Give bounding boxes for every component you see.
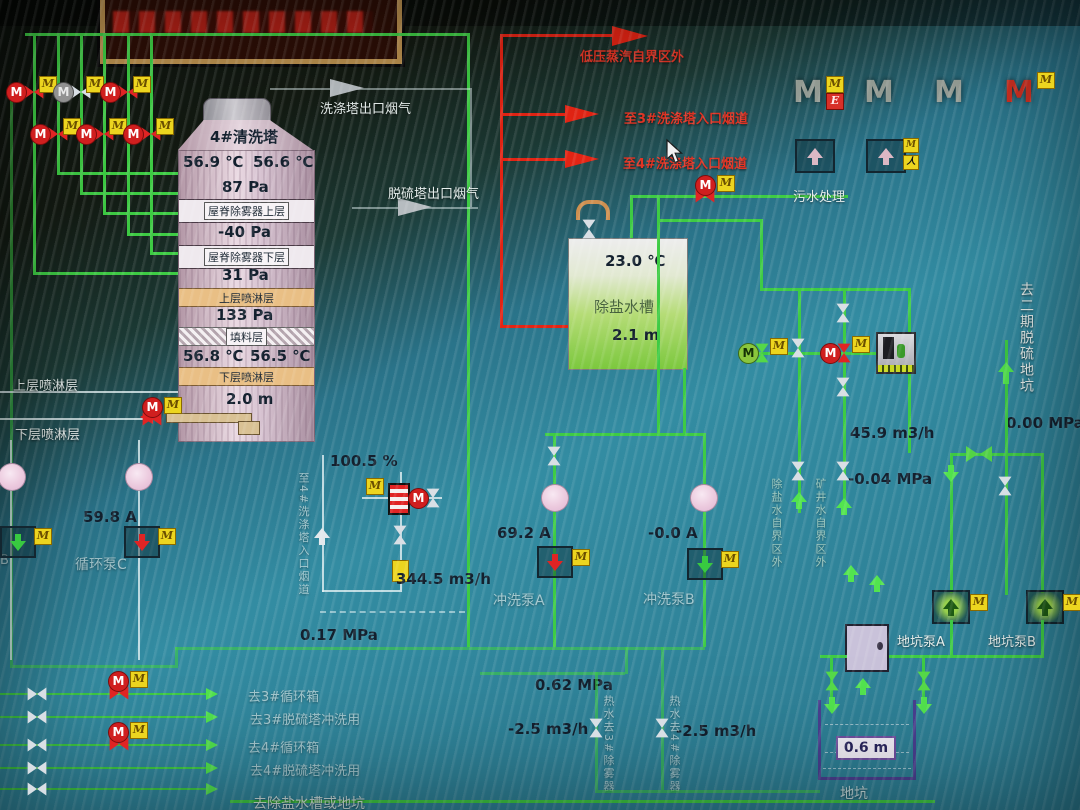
valve-icon[interactable] <box>837 462 850 481</box>
circ-c-current: 59.8 A <box>83 508 137 526</box>
bottom-flow-left: -2.5 m3/h <box>508 720 588 738</box>
m-tag: M <box>130 671 148 688</box>
pipe <box>760 219 763 288</box>
m-tag: M <box>130 722 148 739</box>
pipe <box>703 433 706 647</box>
m-tag: M <box>1063 594 1080 611</box>
motor-indicator[interactable]: M <box>108 722 129 743</box>
tower-level: 2.0 m <box>226 390 273 408</box>
m-tag: M <box>164 397 182 414</box>
demin-src-label: 除盐水自界区外 <box>768 478 784 598</box>
water-line <box>823 768 911 769</box>
pit-level-box: 0.6 m <box>836 736 896 760</box>
right-flow: 45.9 m3/h <box>850 424 934 442</box>
m-tag: M <box>133 76 151 93</box>
valve-icon[interactable] <box>548 447 561 466</box>
steam-label-3: 至4#洗涤塔入口烟道 <box>623 153 747 172</box>
m-tag: M <box>1037 72 1055 89</box>
valve-icon[interactable] <box>28 783 47 796</box>
pump-impeller[interactable] <box>541 484 569 512</box>
pipe <box>80 192 178 195</box>
tower-name: 4#清洗塔 <box>210 126 278 147</box>
pipe <box>657 219 760 222</box>
pipe <box>0 418 148 420</box>
branch-label-2: 去4#循环箱 <box>248 737 319 756</box>
pipe <box>630 195 633 238</box>
tower-temp-br: 56.5 ℃ <box>250 347 310 365</box>
branch-label-0: 去3#循环箱 <box>248 686 319 705</box>
steam-arrow-icon <box>565 105 599 123</box>
pipe <box>950 620 953 655</box>
flow-arrow-icon <box>843 565 859 582</box>
steam-pipe <box>500 158 570 161</box>
m-tag: M <box>156 118 174 135</box>
branch-arrow-icon <box>206 711 218 723</box>
pit-pump-b-label: 地坑泵B <box>988 631 1036 650</box>
flush-a-current: 69.2 A <box>497 524 551 542</box>
person-alarm-icon: 人 <box>903 155 919 170</box>
run-arrow-icon <box>10 534 26 551</box>
water-line <box>825 724 909 725</box>
instrument-icon[interactable] <box>876 332 916 374</box>
motor-indicator[interactable]: M <box>695 175 716 196</box>
spray-lower-band-label: 下层喷淋层 <box>219 369 274 385</box>
flue-duct <box>270 88 470 90</box>
motor-indicator[interactable]: M <box>100 82 121 103</box>
motor-indicator[interactable]: M <box>738 343 759 364</box>
right-vacuum: -0.04 MPa <box>848 470 932 488</box>
m-tag: M <box>826 76 844 93</box>
motor-indicator[interactable]: M <box>142 397 163 418</box>
flow-arrow-icon <box>791 492 807 509</box>
dest-label: 去二期脱硫地坑 <box>1016 282 1036 412</box>
flue-out-label: 洗涤塔出口烟气 <box>320 98 411 117</box>
tower-nozzle-box <box>238 421 260 435</box>
side-spray-upper-label: 上层喷淋层 <box>13 375 78 394</box>
pit-pump-a-box[interactable] <box>932 590 970 624</box>
valve-icon[interactable] <box>837 304 850 323</box>
m-tag: M <box>721 551 739 568</box>
flush-a-label: 冲洗泵A <box>493 590 545 610</box>
tower-temp-tl: 56.9 ℃ <box>183 153 243 171</box>
m-tag: M <box>158 528 176 545</box>
run-arrow-icon <box>134 534 150 551</box>
status-arrow-box[interactable] <box>795 139 835 173</box>
run-arrow-icon <box>547 554 563 571</box>
duct4-label: 热水去4#除雾器 <box>666 695 682 795</box>
tower-temp-bl: 56.8 ℃ <box>183 347 243 365</box>
pipe <box>760 288 910 291</box>
title-glow <box>113 11 373 33</box>
tower-pa-top: 87 Pa <box>222 178 269 196</box>
pipe <box>127 233 178 236</box>
pump-status-box[interactable] <box>0 526 36 558</box>
valve-icon[interactable] <box>590 719 603 738</box>
spray-upper-band-label: 上层喷淋层 <box>219 290 274 306</box>
pump-impeller[interactable] <box>125 463 153 491</box>
m-tag: M <box>366 478 384 495</box>
pipe <box>10 665 175 668</box>
run-arrow-icon <box>1037 599 1053 616</box>
screen-title-box <box>100 0 402 64</box>
valve-icon[interactable] <box>28 688 47 701</box>
alarm-icon: M <box>903 138 919 153</box>
tank-name: 除盐水槽 <box>594 296 654 317</box>
pump-status-box[interactable] <box>537 546 573 578</box>
valve-icon[interactable] <box>394 526 407 545</box>
valve-icon[interactable] <box>656 719 669 738</box>
valve-opening: 100.5 % <box>330 452 398 470</box>
tower-pa-spray: 133 Pa <box>216 306 273 324</box>
m-tag: M <box>717 175 735 192</box>
pipe <box>25 33 467 36</box>
check-valve-icon[interactable] <box>966 446 992 462</box>
demister-lower-label: 屋脊除雾器下层 <box>204 248 289 266</box>
valve-icon[interactable] <box>28 762 47 775</box>
pipe <box>80 33 83 192</box>
flush-pressure: 0.17 MPa <box>300 626 378 644</box>
steam-pipe <box>500 325 570 328</box>
mine-src-label: 矿井水自界区外 <box>812 478 828 598</box>
side-spray-lower-label: 下层喷淋层 <box>15 424 80 443</box>
valve-icon[interactable] <box>28 739 47 752</box>
valve-icon[interactable] <box>28 711 47 724</box>
tower-pa-between: -40 Pa <box>218 223 271 241</box>
valve-icon[interactable] <box>918 672 931 691</box>
sewage-label: 污水处理 <box>793 186 845 205</box>
packing-band-label: 填料层 <box>226 328 267 346</box>
motor-status-m4[interactable]: M <box>1004 75 1034 110</box>
duct3-label: 热水去3#除雾器 <box>600 695 616 795</box>
sump-dot <box>877 642 883 650</box>
branch-arrow-icon <box>206 783 218 795</box>
run-arrow-icon <box>943 599 959 616</box>
pipe <box>683 368 686 433</box>
steam-label-2: 至3#洗涤塔入口烟道 <box>624 108 748 127</box>
flue-out-label2: 脱硫塔出口烟气 <box>388 183 479 202</box>
pipe <box>322 590 402 592</box>
flow-arrow-icon <box>916 697 932 714</box>
up-arrow-icon <box>878 148 894 165</box>
control-valve[interactable] <box>388 483 410 515</box>
instrument-door <box>883 337 894 359</box>
vent-hook-icon <box>576 200 610 220</box>
valve-icon[interactable] <box>999 477 1012 496</box>
instrument-strip <box>878 365 914 372</box>
motor-status-m1[interactable]: M <box>793 75 823 110</box>
pipe <box>480 672 625 675</box>
pipe <box>175 647 178 668</box>
motor-status-m2[interactable]: M <box>864 75 894 110</box>
pipe <box>1041 620 1044 655</box>
pipe <box>103 212 178 215</box>
duct-label-vert: 至4#洗涤塔入口烟道 <box>295 472 311 602</box>
valve-icon[interactable] <box>826 672 839 691</box>
m-tag: M <box>34 528 52 545</box>
flush-b-label: 冲洗泵B <box>643 589 695 609</box>
circ-c-label: 循环泵C <box>75 554 127 574</box>
motor-indicator[interactable]: M <box>408 488 429 509</box>
flush-flow: 344.5 m3/h <box>396 570 491 588</box>
motor-indicator[interactable]: M <box>123 124 144 145</box>
pipe <box>883 655 1044 658</box>
pit-level: 0.6 m <box>844 740 888 756</box>
pipe <box>820 655 847 658</box>
pit-pump-a-label: 地坑泵A <box>897 631 945 650</box>
flow-arrow-icon <box>314 528 330 545</box>
m-tag: M <box>970 594 988 611</box>
pump-status-box[interactable] <box>687 548 723 580</box>
tower-pa-below: 31 Pa <box>222 266 269 284</box>
flow-arrow-icon <box>836 498 852 515</box>
pipe <box>595 790 820 793</box>
motor-indicator[interactable]: M <box>76 124 97 145</box>
tank-level: 2.1 m <box>612 326 659 344</box>
motor-indicator[interactable]: M <box>30 124 51 145</box>
motor-indicator[interactable]: M <box>820 343 841 364</box>
pipe <box>33 272 178 275</box>
flow-arrow-icon <box>855 678 871 695</box>
m-tag: M <box>852 336 870 353</box>
pump-impeller[interactable] <box>0 463 26 491</box>
run-arrow-icon <box>697 556 713 573</box>
up-arrow-icon <box>807 148 823 165</box>
instrument-figure <box>897 344 905 358</box>
branch-arrow-icon <box>206 762 218 774</box>
pipe <box>625 647 628 674</box>
steam-pipe <box>500 113 570 116</box>
tower-temp-tr: 56.6 ℃ <box>253 153 313 171</box>
m-tag: M <box>770 338 788 355</box>
pipe <box>657 195 660 433</box>
flush-b-current: -0.0 A <box>648 524 698 542</box>
branch-arrow-icon <box>206 739 218 751</box>
flow-arrow-icon <box>998 362 1014 384</box>
steam-label-1: 低压蒸汽自界区外 <box>580 46 684 65</box>
hmi-screen: M M M M M M M M M M M M 洗涤塔出口烟气 脱硫塔出口烟气 … <box>0 0 1080 810</box>
pipe <box>1041 453 1044 593</box>
sump-box[interactable] <box>845 624 889 672</box>
pipe <box>33 33 36 272</box>
m-tag: M <box>572 549 590 566</box>
flow-arrow-icon <box>869 575 885 592</box>
vent-valve-icon <box>583 220 596 239</box>
bottom-flow-right: -2.5 m3/h <box>676 722 756 740</box>
bottom-pressure: 0.62 MPa <box>535 676 613 694</box>
flow-arrow-icon <box>943 465 959 482</box>
steam-pipe <box>500 34 503 325</box>
pipe <box>322 455 324 592</box>
pipe <box>103 33 106 212</box>
pipe <box>150 252 178 255</box>
pump-status-box[interactable] <box>124 526 160 558</box>
right-pressure: 0.00 MPa <box>1006 414 1080 432</box>
steam-arrow-icon <box>565 150 599 168</box>
pump-impeller[interactable] <box>690 484 718 512</box>
branch-arrow-icon <box>206 688 218 700</box>
e-tag: E <box>826 93 844 110</box>
motor-status-m3[interactable]: M <box>934 75 964 110</box>
motor-indicator[interactable]: M <box>108 671 129 692</box>
motor-indicator[interactable]: M <box>53 82 74 103</box>
pipe <box>150 33 153 252</box>
pit-pump-b-box[interactable] <box>1026 590 1064 624</box>
valve-icon[interactable] <box>792 339 805 358</box>
mouse-cursor <box>664 138 684 166</box>
valve-icon[interactable] <box>792 462 805 481</box>
branch-label-3: 去4#脱硫塔冲洗用 <box>250 760 360 779</box>
pipe <box>57 172 178 175</box>
valve-icon[interactable] <box>837 378 850 397</box>
motor-indicator[interactable]: M <box>6 82 27 103</box>
branch-label-1: 去3#脱硫塔冲洗用 <box>250 709 360 728</box>
pipe <box>545 433 705 436</box>
status-arrow-box[interactable] <box>866 139 906 173</box>
pipe-dashed <box>320 611 465 613</box>
steam-arrow-icon <box>612 26 648 46</box>
demister-upper-label: 屋脊除雾器上层 <box>204 202 289 220</box>
flue-arrow-icon <box>330 79 364 97</box>
branch-label-4: 去除盐水槽或地坑 <box>253 793 365 810</box>
